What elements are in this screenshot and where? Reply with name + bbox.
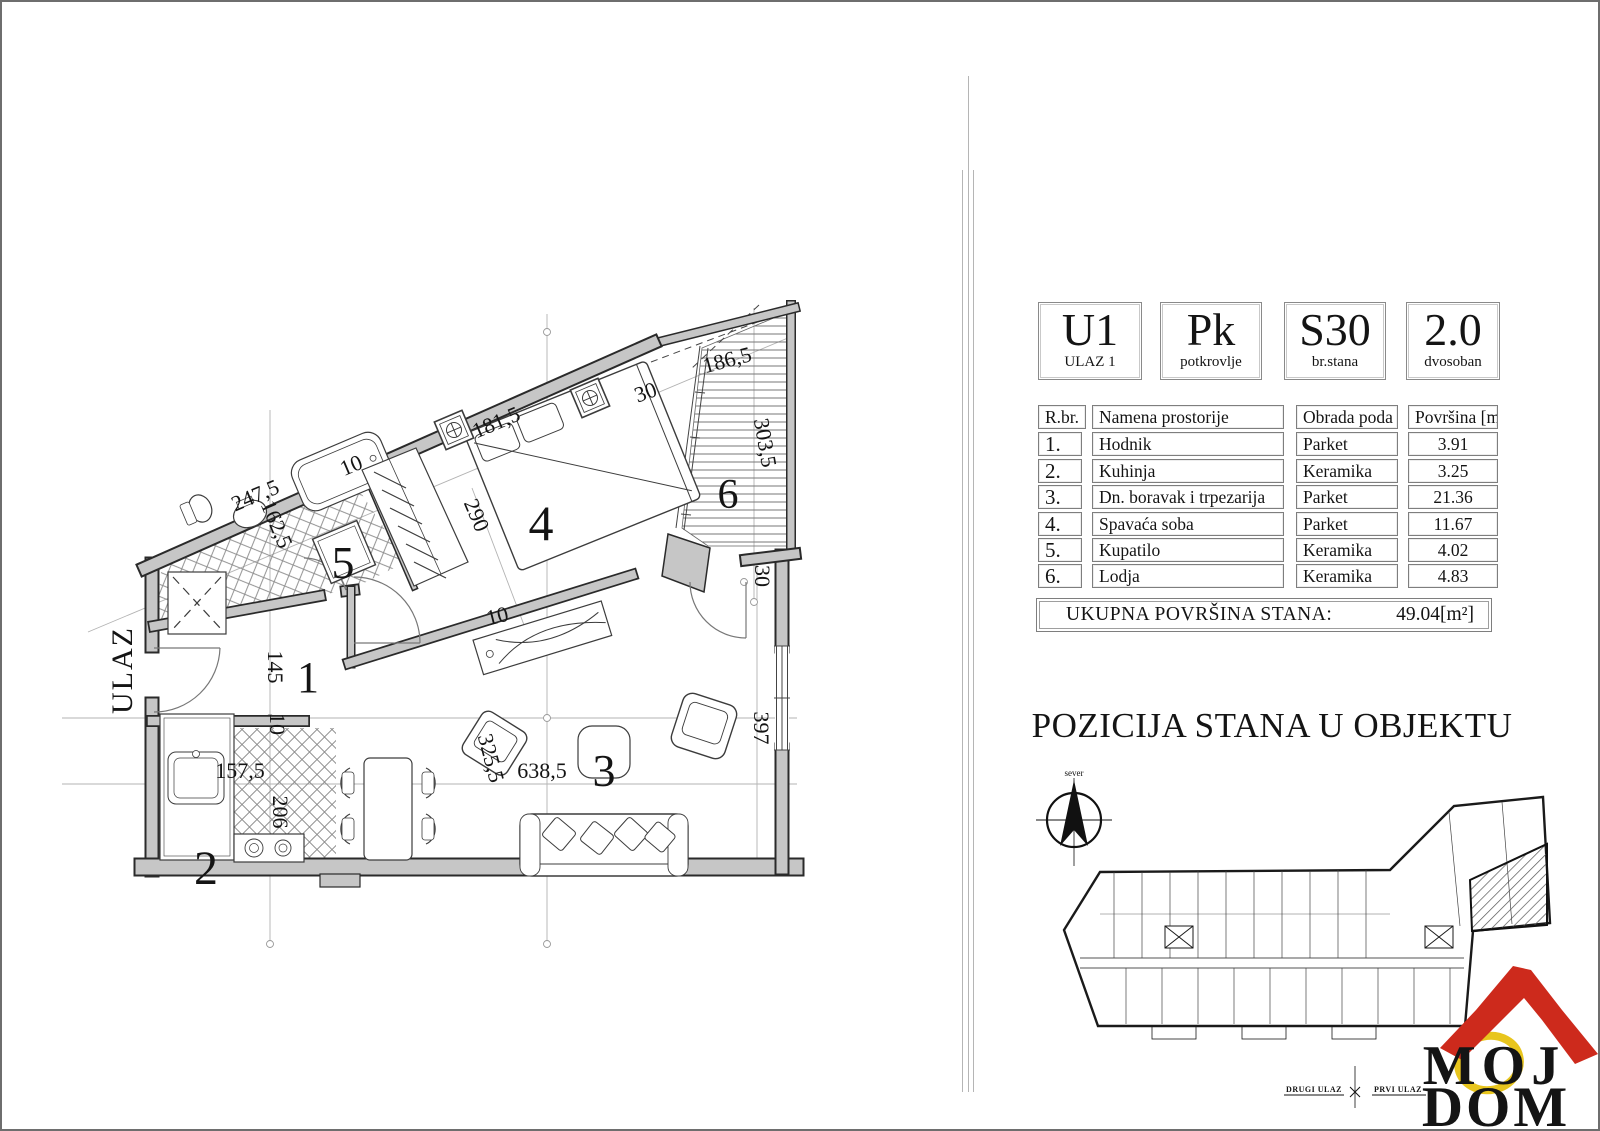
unit-floor-label: potkrovlje	[1161, 354, 1261, 370]
dim-hall: 145	[263, 651, 288, 684]
entrance-label: ULAZ	[106, 626, 139, 714]
dim-30-loggia: 30	[750, 565, 775, 587]
col-header-rbr: R.br.	[1038, 405, 1086, 429]
dim-kitchen-w: 157,5	[215, 758, 265, 783]
dim-kitchen-d: 206	[268, 796, 293, 829]
table-row-num: 2.	[1038, 459, 1082, 483]
armchair	[669, 691, 740, 762]
unit-number-box: S30 br.stana	[1284, 302, 1386, 380]
table-row-name: Kupatilo	[1092, 538, 1284, 562]
table-row-floor: Parket	[1296, 512, 1398, 536]
room-number-1: 1	[297, 653, 319, 702]
position-title: POZICIJA STANA U OBJEKTU	[1012, 706, 1532, 746]
stove	[234, 834, 304, 862]
dim-living-right: 397	[749, 712, 774, 745]
room-number-3: 3	[593, 745, 616, 796]
table-row-name: Dn. boravak i trpezarija	[1092, 485, 1284, 509]
table-row-area: 3.91	[1408, 432, 1498, 456]
total-area-label: UKUPNA POVRŠINA STANA:	[1040, 604, 1332, 626]
col-header-area: Površina [m²]	[1408, 405, 1498, 429]
unit-entrance-label: ULAZ 1	[1039, 354, 1141, 370]
room-number-5: 5	[332, 537, 355, 588]
floorplan-drawing: 1 2 3 4 5 6 247,5 162,5 10 181,5 290 30 …	[2, 2, 962, 1131]
unit-floor-code: Pk	[1161, 304, 1261, 356]
unit-entrance-box: U1 ULAZ 1	[1038, 302, 1142, 380]
col-header-floor: Obrada poda	[1296, 405, 1398, 429]
building-footprint	[1064, 797, 1550, 1039]
table-row-num: 3.	[1038, 485, 1082, 509]
table-row-name: Spavaća soba	[1092, 512, 1284, 536]
table-row-area: 3.25	[1408, 459, 1498, 483]
table-row-name: Lodja	[1092, 564, 1284, 588]
toilet	[178, 491, 216, 528]
table-row-area: 11.67	[1408, 512, 1498, 536]
table-row-name: Kuhinja	[1092, 459, 1284, 483]
logo-word-2: DOM	[1422, 1076, 1570, 1131]
room-number-2: 2	[194, 842, 218, 895]
entrance-door-arc	[154, 648, 220, 712]
room-number-6: 6	[718, 472, 739, 518]
window-right-wall	[774, 646, 790, 750]
table-row-floor: Keramika	[1296, 459, 1398, 483]
unit-entrance-code: U1	[1039, 304, 1141, 356]
compass-label: sever	[1065, 768, 1084, 778]
north-compass-icon: sever	[1036, 768, 1112, 866]
shower	[168, 572, 226, 634]
unit-number-code: S30	[1285, 304, 1385, 356]
table-row-floor: Parket	[1296, 485, 1398, 509]
site-entrance-labels: DRUGI ULAZ PRVI ULAZ	[1284, 1066, 1426, 1108]
table-row-num: 1.	[1038, 432, 1082, 456]
table-row-floor: Parket	[1296, 432, 1398, 456]
unit-floor-box: Pk potkrovlje	[1160, 302, 1262, 380]
col-header-name: Namena prostorije	[1092, 405, 1284, 429]
dim-10-tvwall: 10	[483, 601, 510, 631]
unit-type-label: dvosoban	[1407, 354, 1499, 370]
unit-number-label: br.stana	[1285, 354, 1385, 370]
table-row-num: 6.	[1038, 564, 1082, 588]
table-row-floor: Keramika	[1296, 564, 1398, 588]
table-row-num: 4.	[1038, 512, 1082, 536]
entrance-left-label: DRUGI ULAZ	[1286, 1085, 1342, 1094]
site-plan-drawing: sever	[1002, 760, 1600, 1131]
dim-bed-depth: 290	[459, 495, 495, 535]
table-row-num: 5.	[1038, 538, 1082, 562]
total-area-bar: UKUPNA POVRŠINA STANA: 49.04[m²]	[1036, 598, 1492, 632]
total-area-value: 49.04[m²]	[1396, 604, 1474, 626]
dining-set	[341, 758, 435, 860]
room-number-4: 4	[529, 495, 554, 551]
entrance-right-label: PRVI ULAZ	[1374, 1085, 1422, 1094]
unit-type-box: 2.0 dvosoban	[1406, 302, 1500, 380]
dim-10-kitchen: 10	[265, 713, 290, 735]
bedroom-door-arc	[354, 577, 420, 643]
divider-line	[962, 170, 963, 1092]
table-row-floor: Keramika	[1296, 538, 1398, 562]
table-row-area: 4.02	[1408, 538, 1498, 562]
divider-line	[973, 170, 974, 1092]
unit-type-code: 2.0	[1407, 304, 1499, 356]
sofa	[520, 814, 688, 876]
table-row-name: Hodnik	[1092, 432, 1284, 456]
table-row-area: 21.36	[1408, 485, 1498, 509]
divider-line	[968, 76, 969, 1092]
table-row-area: 4.83	[1408, 564, 1498, 588]
plan-sheet-page: 1 2 3 4 5 6 247,5 162,5 10 181,5 290 30 …	[0, 0, 1600, 1131]
dim-living-w: 638,5	[517, 758, 567, 783]
